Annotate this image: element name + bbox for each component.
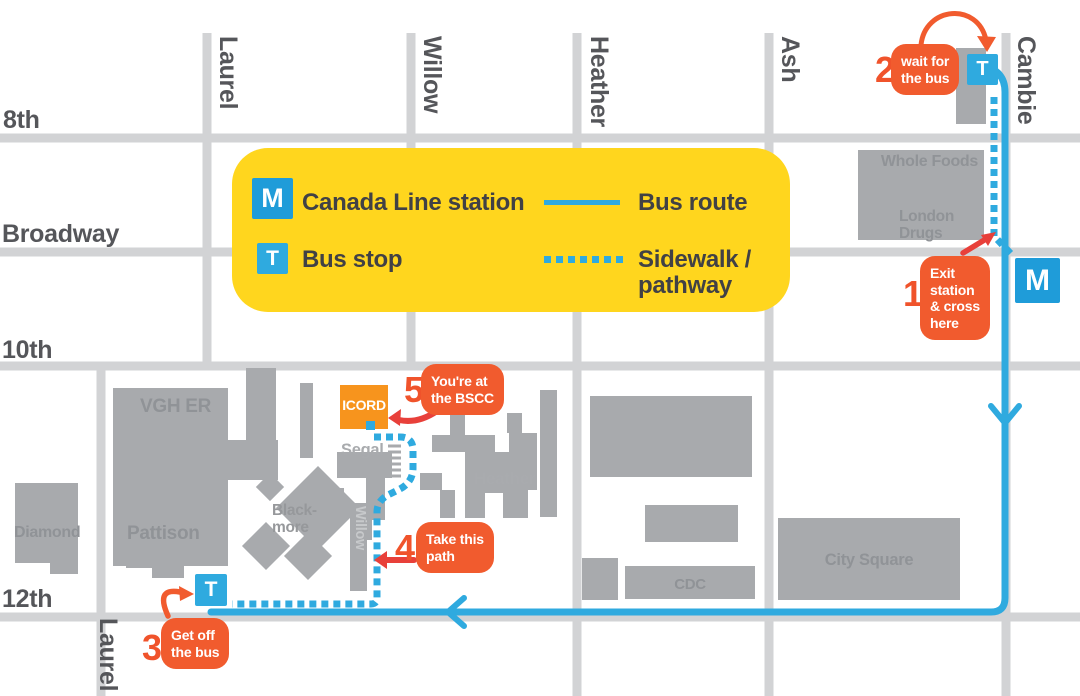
buildings [15,48,986,600]
step3-number: 3 [142,630,162,666]
legend-sidewalk-swatch [544,256,626,263]
step1-line2: station [930,282,980,299]
blackmore-line2: more [272,520,317,537]
legend-bus-route-label: Bus route [638,190,747,216]
step5-line2: the BSCC [431,390,494,407]
vgh-er-label: VGH ER [140,396,211,418]
pattison-label: Pattison [127,523,200,545]
cdc-label: CDC [625,576,755,593]
legend-sidewalk-line1: Sidewalk / [638,247,751,273]
step5-callout: You're at the BSCC [421,364,504,415]
transit-directions-map: 8th Broadway 10th 12th Laurel Willow Hea… [0,0,1080,696]
willow-building-label: Willow [352,506,368,550]
canada-line-station-icon: M [1015,258,1060,303]
street-label-8th: 8th [3,106,40,135]
london-drugs-line2: Drugs [899,226,954,243]
icord-entrance-marker [366,421,375,430]
bus-stop-icon-cambie: T [967,54,998,85]
legend-bus-route-swatch [544,200,620,205]
street-label-heather: Heather [584,36,613,127]
street-label-cambie: Cambie [1011,36,1040,125]
street-label-12th: 12th [2,585,52,614]
city-square-label: City Square [778,551,960,570]
step3-line1: Get off [171,627,219,644]
step5-line1: You're at [431,373,494,390]
step3-callout: Get off the bus [161,618,229,669]
step2-line1: wait for [901,53,949,70]
legend-canada-line-label: Canada Line station [302,190,524,216]
step4-number: 4 [395,530,415,566]
icord-label: ICORD [340,397,388,413]
unlabeled-building-1 [590,396,752,477]
step2-callout: wait for the bus [891,44,959,95]
step1-callout: Exit station & cross here [920,256,990,340]
street-label-ash: Ash [775,36,804,82]
blackmore-line1: Black- [272,503,317,520]
street-label-laurel: Laurel [213,36,242,109]
step3-line2: the bus [171,644,219,661]
step4-callout: Take this path [416,522,494,573]
segal-label: Segal [341,441,384,460]
street-label-willow: Willow [417,36,446,113]
legend-bus-stop-label: Bus stop [302,247,402,273]
legend-sidewalk-label: Sidewalk / pathway [638,247,751,299]
step2-line2: the bus [901,70,949,87]
step4-line2: path [426,548,484,565]
blackmore-label: Black- more [272,503,317,536]
whole-foods-label: Whole Foods [856,153,984,171]
step1-line3: & cross [930,298,980,315]
heather-building-label: Heather [474,469,535,489]
legend-sidewalk-line2: pathway [638,273,751,299]
step4-line1: Take this [426,531,484,548]
legend-bus-stop-icon: T [257,243,288,274]
step1-line4: here [930,315,980,332]
unlabeled-building-2 [645,505,738,542]
legend-canada-line-icon: M [252,178,293,219]
legend: M Canada Line station T Bus stop Bus rou… [232,148,790,312]
street-label-laurel-south: Laurel [93,618,122,691]
map-canvas [0,0,1080,696]
street-label-10th: 10th [2,336,52,365]
street-label-broadway: Broadway [2,220,119,249]
london-drugs-line1: London [899,209,954,226]
step1-line1: Exit [930,265,980,282]
diamond-label: Diamond [14,524,78,542]
london-drugs-label: London Drugs [899,209,954,242]
step3-arrow [164,586,194,616]
unlabeled-building-3 [582,558,618,600]
bus-stop-icon-12th: T [195,574,227,606]
